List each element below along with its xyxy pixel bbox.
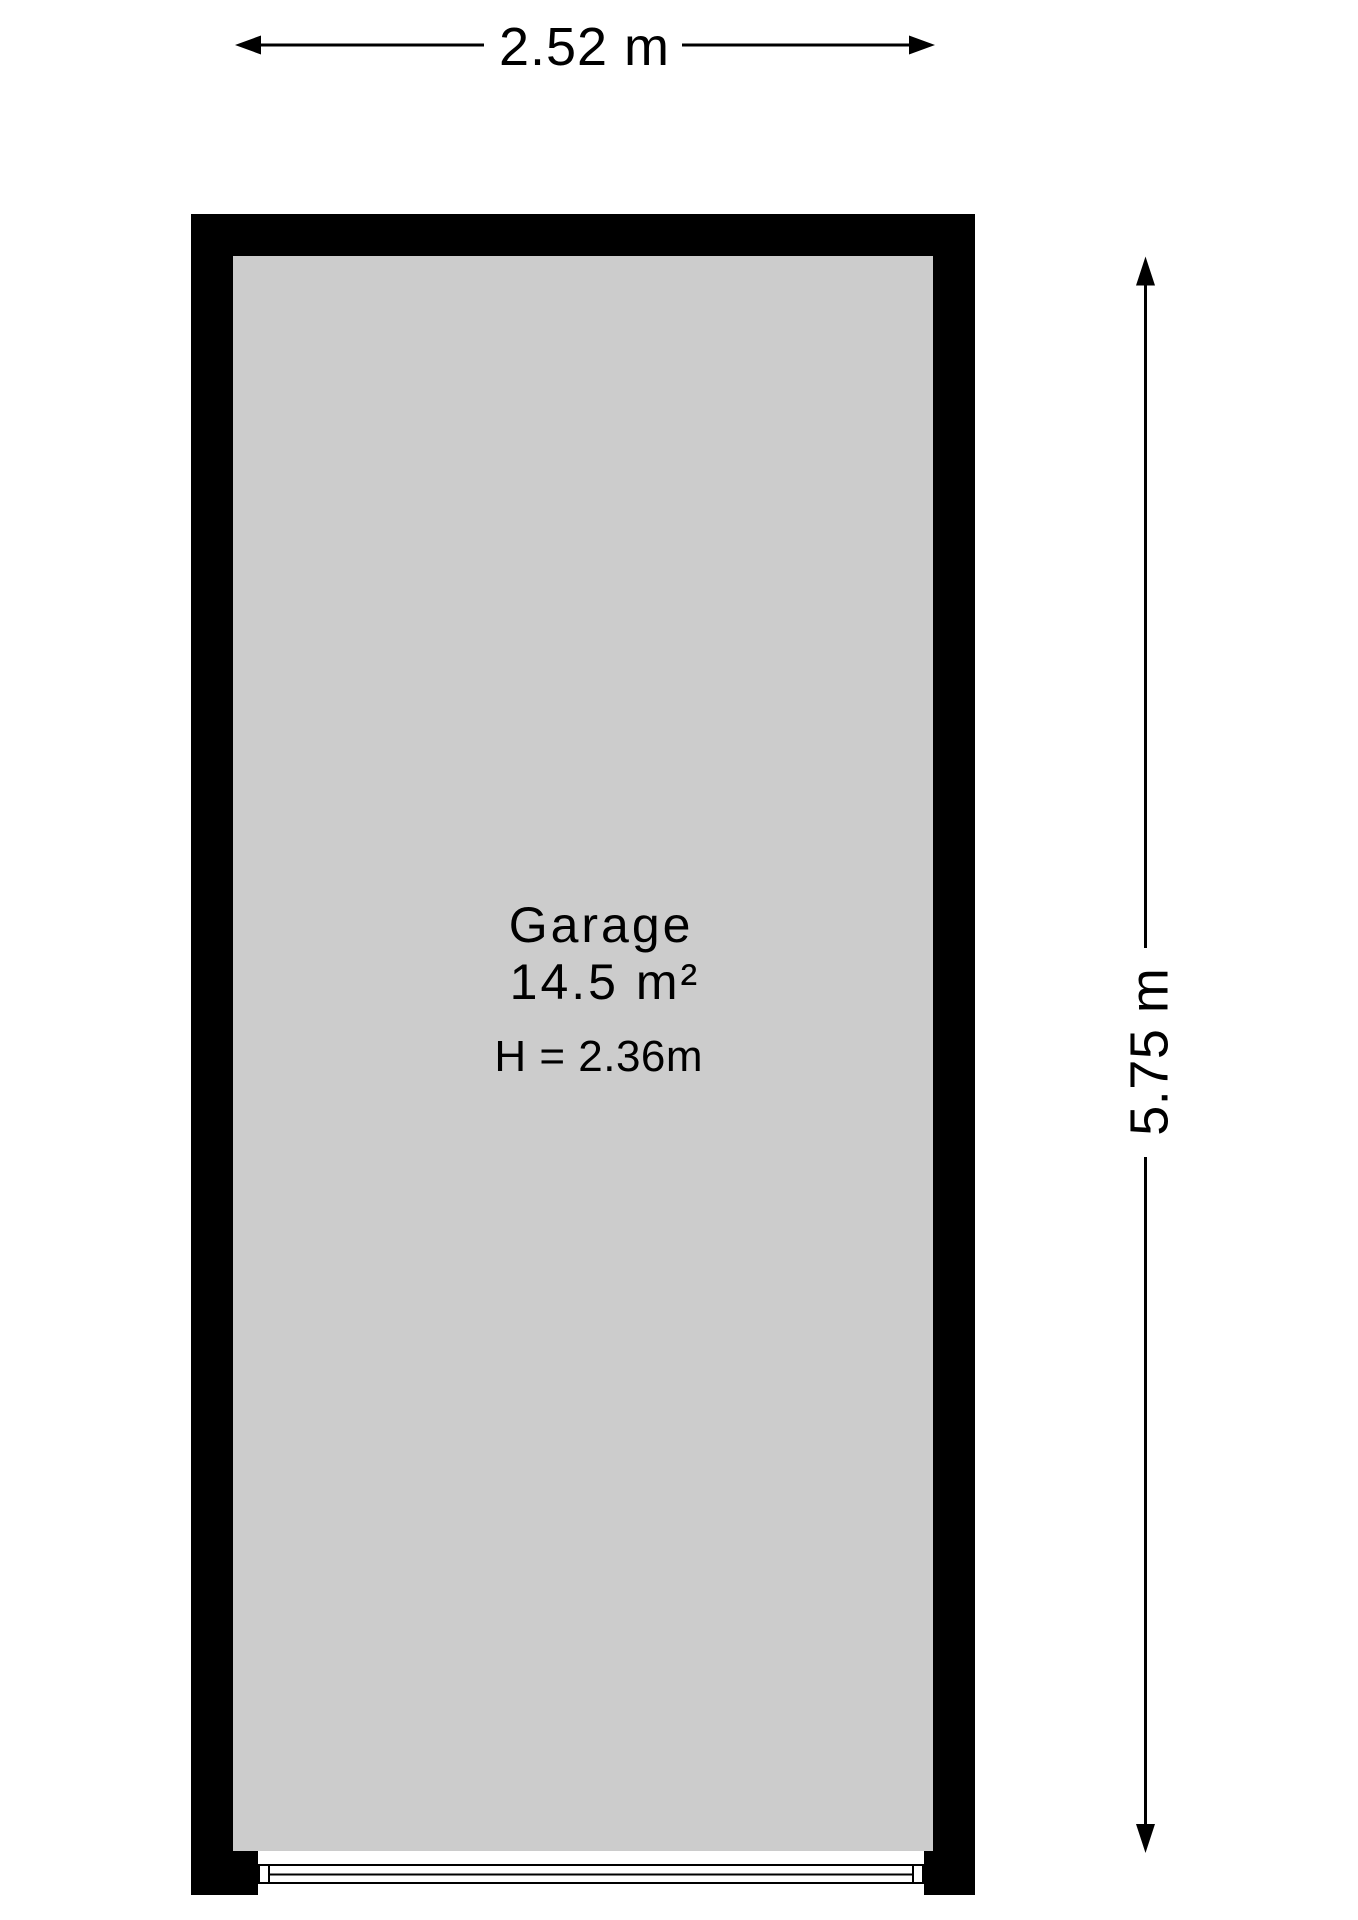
svg-text:H = 2.36m: H = 2.36m — [494, 1032, 703, 1081]
svg-text:5.75 m: 5.75 m — [1120, 968, 1180, 1136]
svg-text:14.5 m²: 14.5 m² — [510, 954, 701, 1010]
svg-text:Garage: Garage — [509, 897, 694, 953]
svg-text:2.52 m: 2.52 m — [499, 17, 670, 77]
